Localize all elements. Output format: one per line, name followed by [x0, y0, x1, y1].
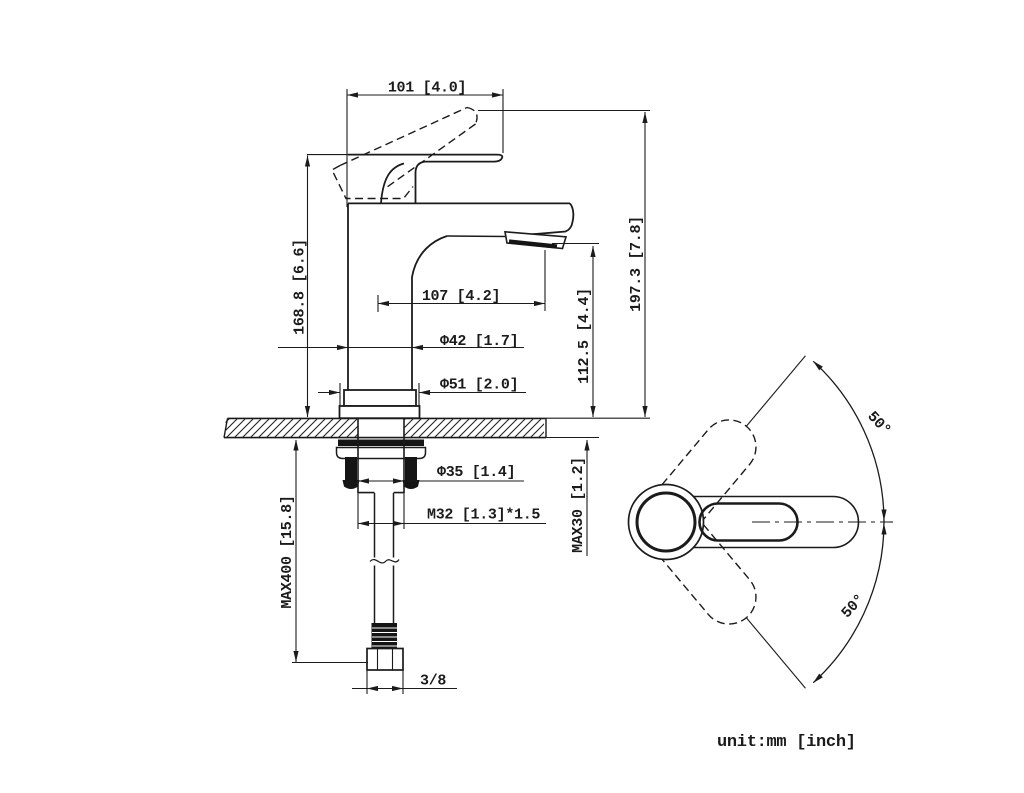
stud-foot-left [343, 480, 360, 489]
base-plate [340, 406, 420, 418]
threaded-end [372, 623, 398, 649]
mounting-nut [337, 448, 426, 459]
dim-spout-reach-label: 107 [4.2] [422, 288, 500, 305]
dim-hose-connection-label: 3/8 [420, 673, 446, 690]
handle-grip [700, 504, 798, 541]
dim-spout-reach: 107 [4.2] [378, 250, 545, 312]
dim-spout-outlet-height: 112.5 [4.4] [552, 244, 599, 418]
dim-body-height: 168.8 [6.6] [292, 156, 311, 418]
supply-hose [367, 493, 403, 670]
mounting-stud-left [345, 457, 357, 481]
unit-note: unit:mm [inch] [717, 733, 856, 752]
dim-overall-height: 197.3 [7.8] [478, 111, 650, 419]
dim-spout-outlet-height-label: 112.5 [4.4] [576, 288, 593, 384]
drawing-sheet: 101 [4.0] 168.8 [6.6] 107 [4.2] Φ42 [1.7… [0, 0, 1024, 793]
pipe-break-symbol [370, 560, 399, 563]
angle-upper-label: 50° [863, 408, 893, 439]
dim-handle-length-label: 101 [4.0] [388, 80, 466, 97]
rubber-washer [338, 440, 424, 447]
dim-base-diameter-label: Φ51 [2.0] [440, 377, 518, 394]
dim-mounting-thread-label: M32 [1.3]*1.5 [427, 507, 540, 524]
handle-hub [637, 493, 695, 551]
dim-body-diameter: Φ42 [1.7] [278, 333, 524, 350]
base-flange [344, 390, 416, 406]
mounting-stud-right [405, 457, 417, 481]
dim-body-height-label: 168.8 [6.6] [292, 239, 309, 335]
dim-max-deck-thickness: MAX30 [1.2] [546, 438, 599, 557]
top-view: 50° 50° [629, 338, 894, 705]
dim-shank-diameter: Φ35 [1.4] [358, 464, 524, 484]
handle-phantom-upper [662, 338, 826, 519]
handle-raised-phantom [332, 108, 477, 199]
dim-overall-height-label: 197.3 [7.8] [628, 216, 645, 312]
hose-hex-nut [367, 649, 403, 671]
countertop-section [224, 418, 546, 437]
faucet-technical-drawing: 101 [4.0] 168.8 [6.6] 107 [4.2] Φ42 [1.7… [0, 0, 1024, 793]
dim-max-deck-thickness-label: MAX30 [1.2] [570, 457, 587, 553]
dim-supply-hose-length-label: MAX400 [15.8] [279, 495, 296, 608]
dim-body-diameter-label: Φ42 [1.7] [440, 333, 518, 350]
dim-shank-diameter-label: Φ35 [1.4] [437, 464, 515, 481]
dim-handle-length: 101 [4.0] [347, 80, 503, 208]
handle-phantom-lower [662, 525, 826, 706]
angle-lower-label: 50° [838, 591, 868, 622]
body-top-outline [629, 485, 704, 560]
dim-mounting-thread: M32 [1.3]*1.5 [358, 492, 546, 529]
dim-hose-connection: 3/8 [352, 670, 457, 694]
